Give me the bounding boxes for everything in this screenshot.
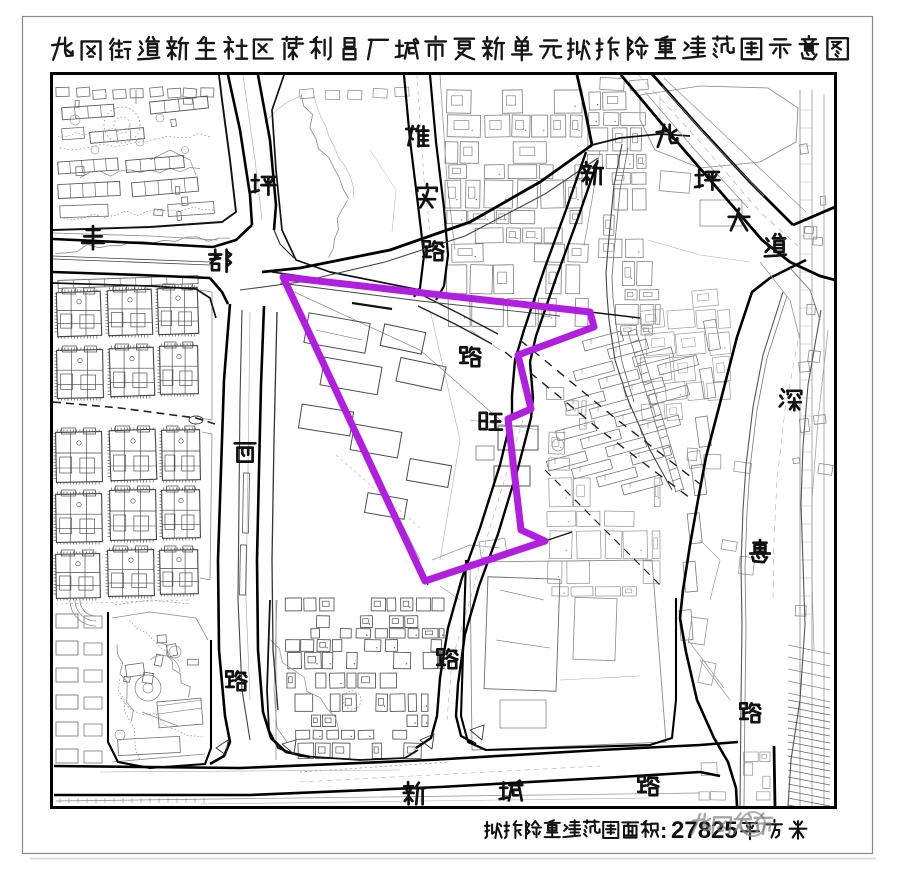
svg-text::: :	[660, 818, 667, 843]
